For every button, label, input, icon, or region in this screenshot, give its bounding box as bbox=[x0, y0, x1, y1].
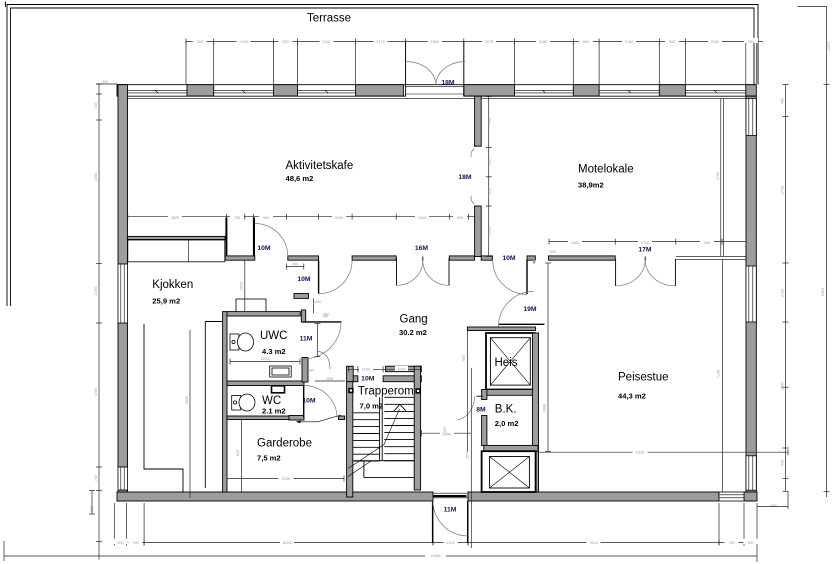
svg-text:2435: 2435 bbox=[282, 477, 290, 481]
svg-text:48,6 m2: 48,6 m2 bbox=[286, 174, 314, 183]
svg-text:Gang: Gang bbox=[400, 314, 428, 326]
svg-text:11M: 11M bbox=[300, 336, 313, 343]
svg-text:Terrasse: Terrasse bbox=[307, 13, 351, 25]
svg-text:540: 540 bbox=[315, 300, 321, 304]
svg-text:7108: 7108 bbox=[717, 370, 721, 378]
svg-text:25,9 m2: 25,9 m2 bbox=[152, 297, 180, 306]
svg-text:460: 460 bbox=[292, 262, 298, 266]
svg-text:3330: 3330 bbox=[335, 216, 343, 220]
svg-text:Garderobe: Garderobe bbox=[257, 438, 312, 450]
svg-text:Peisestue: Peisestue bbox=[618, 372, 669, 384]
svg-text:4790: 4790 bbox=[716, 172, 720, 180]
svg-text:2825: 2825 bbox=[171, 216, 179, 220]
svg-text:B.K.: B.K. bbox=[495, 404, 517, 416]
svg-text:360: 360 bbox=[323, 313, 329, 317]
svg-text:900: 900 bbox=[457, 216, 463, 220]
svg-text:900: 900 bbox=[462, 355, 466, 361]
svg-text:Aktivitetskafe: Aktivitetskafe bbox=[286, 160, 354, 172]
svg-text:10M: 10M bbox=[502, 255, 516, 262]
svg-text:10M: 10M bbox=[302, 398, 316, 405]
svg-text:1150: 1150 bbox=[362, 368, 370, 372]
svg-text:10M: 10M bbox=[257, 245, 271, 252]
svg-text:1900: 1900 bbox=[443, 427, 447, 435]
svg-text:1498: 1498 bbox=[488, 118, 492, 126]
svg-text:940: 940 bbox=[781, 460, 785, 466]
svg-text:930: 930 bbox=[704, 241, 710, 245]
svg-text:2180: 2180 bbox=[625, 40, 633, 44]
svg-text:2403: 2403 bbox=[827, 42, 831, 50]
svg-text:1090: 1090 bbox=[397, 368, 405, 372]
svg-text:2180: 2180 bbox=[239, 40, 247, 44]
svg-text:16M: 16M bbox=[415, 245, 429, 252]
svg-text:2231: 2231 bbox=[261, 357, 269, 361]
svg-text:WC: WC bbox=[262, 395, 281, 407]
svg-text:790: 790 bbox=[132, 541, 138, 545]
svg-text:4250: 4250 bbox=[94, 173, 98, 181]
svg-text:6338: 6338 bbox=[636, 451, 644, 455]
svg-text:10M: 10M bbox=[297, 276, 311, 283]
svg-text:17M: 17M bbox=[638, 247, 652, 254]
svg-text:18M: 18M bbox=[458, 174, 472, 181]
svg-text:7624: 7624 bbox=[589, 541, 597, 545]
svg-text:2,0 m2: 2,0 m2 bbox=[495, 419, 519, 428]
svg-text:Motelokale: Motelokale bbox=[578, 164, 634, 176]
svg-text:10480: 10480 bbox=[430, 554, 441, 558]
svg-text:Heis: Heis bbox=[495, 357, 518, 369]
svg-text:900: 900 bbox=[263, 216, 269, 220]
svg-text:3060: 3060 bbox=[781, 382, 785, 390]
svg-text:4988: 4988 bbox=[543, 404, 547, 412]
svg-text:960: 960 bbox=[488, 188, 492, 194]
svg-text:4750: 4750 bbox=[94, 388, 98, 396]
svg-text:Trapperom: Trapperom bbox=[358, 386, 414, 398]
svg-text:200: 200 bbox=[117, 541, 123, 545]
svg-text:9403: 9403 bbox=[821, 288, 825, 296]
svg-text:7,5 m2: 7,5 m2 bbox=[257, 454, 281, 463]
svg-text:2180: 2180 bbox=[322, 40, 330, 44]
svg-text:900: 900 bbox=[669, 40, 675, 44]
svg-text:2175: 2175 bbox=[376, 40, 384, 44]
svg-text:620: 620 bbox=[236, 450, 240, 456]
svg-text:785: 785 bbox=[234, 216, 240, 220]
svg-text:Kjokken: Kjokken bbox=[152, 279, 193, 291]
svg-text:360: 360 bbox=[770, 504, 776, 508]
svg-text:11M: 11M bbox=[444, 506, 457, 513]
svg-text:30.2 m2: 30.2 m2 bbox=[399, 328, 427, 337]
svg-text:8424: 8424 bbox=[283, 541, 291, 545]
svg-text:2700: 2700 bbox=[781, 186, 785, 194]
svg-text:2750: 2750 bbox=[94, 287, 98, 295]
svg-text:2180: 2180 bbox=[539, 40, 547, 44]
svg-text:1868: 1868 bbox=[430, 40, 438, 44]
svg-text:2455: 2455 bbox=[571, 241, 579, 245]
svg-text:7,0 m2: 7,0 m2 bbox=[360, 402, 384, 411]
svg-text:1102: 1102 bbox=[446, 541, 454, 545]
svg-text:19M: 19M bbox=[523, 306, 537, 313]
svg-text:900: 900 bbox=[282, 40, 288, 44]
svg-text:8M: 8M bbox=[476, 406, 486, 413]
svg-text:2730: 2730 bbox=[641, 241, 649, 245]
svg-text:2180: 2180 bbox=[711, 40, 719, 44]
svg-text:2.1 m2: 2.1 m2 bbox=[262, 407, 286, 416]
svg-text:300: 300 bbox=[747, 541, 753, 545]
svg-text:4.3 m2: 4.3 m2 bbox=[262, 347, 286, 356]
svg-text:960: 960 bbox=[488, 159, 492, 165]
svg-text:38,9m2: 38,9m2 bbox=[578, 181, 604, 190]
svg-text:UWC: UWC bbox=[260, 330, 287, 342]
svg-text:300: 300 bbox=[102, 80, 108, 84]
svg-text:740: 740 bbox=[94, 475, 98, 481]
svg-text:400: 400 bbox=[781, 98, 785, 104]
svg-text:600: 600 bbox=[550, 250, 556, 254]
svg-text:780: 780 bbox=[728, 541, 734, 545]
svg-text:740: 740 bbox=[94, 103, 98, 109]
svg-text:940: 940 bbox=[308, 369, 314, 373]
svg-text:900: 900 bbox=[583, 40, 589, 44]
svg-text:18M: 18M bbox=[441, 80, 455, 87]
svg-text:10M: 10M bbox=[361, 376, 375, 383]
svg-text:2175: 2175 bbox=[485, 40, 493, 44]
svg-text:44,3 m2: 44,3 m2 bbox=[618, 392, 646, 401]
svg-text:2400: 2400 bbox=[418, 216, 426, 220]
svg-text:500: 500 bbox=[327, 377, 333, 381]
svg-text:5430: 5430 bbox=[185, 396, 189, 404]
svg-text:900: 900 bbox=[197, 40, 203, 44]
svg-text:200: 200 bbox=[748, 40, 754, 44]
svg-text:1498: 1498 bbox=[488, 227, 492, 235]
svg-text:2169: 2169 bbox=[781, 289, 785, 297]
svg-text:2574: 2574 bbox=[466, 451, 470, 459]
svg-text:2500: 2500 bbox=[239, 282, 243, 290]
